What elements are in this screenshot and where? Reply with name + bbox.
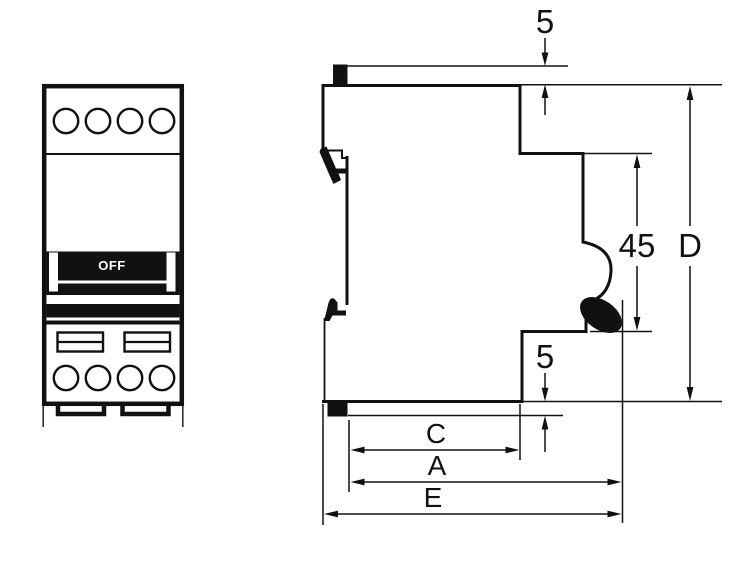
side-view bbox=[320, 65, 629, 417]
toggle-divider-line bbox=[58, 281, 167, 284]
arrow-left-icon bbox=[324, 511, 338, 518]
dimension-depth-a: A bbox=[351, 450, 622, 485]
arrow-down-icon bbox=[542, 388, 549, 401]
mounting-tab bbox=[123, 405, 169, 414]
dimension-label-e: E bbox=[424, 482, 443, 513]
toggle-label: OFF bbox=[98, 258, 126, 273]
front-view: OFF bbox=[43, 86, 183, 427]
toggle-side-slot bbox=[49, 253, 58, 292]
din-fixed-claw bbox=[320, 147, 348, 185]
dimension-drawing: OFF bbox=[0, 0, 745, 573]
dimension-overall-height: D bbox=[678, 86, 702, 401]
mounting-tab bbox=[58, 405, 104, 414]
din-clip-foot bbox=[328, 402, 348, 417]
toggle-switch: OFF bbox=[47, 252, 180, 296]
din-clip-hook bbox=[324, 298, 346, 321]
arrow-down-icon bbox=[634, 317, 641, 331]
dimension-top-protrusion: 5 bbox=[536, 3, 554, 115]
arrow-right-icon bbox=[608, 511, 622, 518]
front-step-stripe bbox=[47, 321, 180, 325]
toggle-side-slot bbox=[167, 253, 176, 292]
arrow-left-icon bbox=[351, 479, 365, 486]
side-profile-outline bbox=[322, 86, 611, 402]
arrow-up-icon bbox=[687, 86, 694, 100]
arrow-up-icon bbox=[542, 416, 549, 430]
dimension-label-c: C bbox=[426, 418, 446, 449]
dimension-label-a: A bbox=[428, 450, 447, 481]
arrow-right-icon bbox=[608, 479, 622, 486]
dimension-label-top-5: 5 bbox=[536, 3, 554, 40]
arrow-up-icon bbox=[634, 155, 641, 169]
dimension-depth-c: C bbox=[351, 418, 520, 453]
dimension-bottom-protrusion: 5 bbox=[536, 338, 554, 452]
dimension-label-45: 45 bbox=[619, 227, 656, 264]
arrow-right-icon bbox=[506, 447, 520, 454]
arrow-left-icon bbox=[351, 447, 365, 454]
top-clip-button bbox=[333, 65, 348, 86]
dimensions: 5 45 D 5 bbox=[323, 3, 722, 525]
arrow-down-icon bbox=[687, 387, 694, 401]
breaker-dimension-diagram: OFF bbox=[0, 0, 745, 573]
arrow-up-icon bbox=[542, 85, 549, 99]
dimension-label-bottom-5: 5 bbox=[536, 338, 554, 375]
dimension-label-d: D bbox=[678, 227, 702, 264]
dimension-front-height: 45 bbox=[619, 155, 656, 331]
dimension-depth-e: E bbox=[324, 482, 622, 517]
front-step-band bbox=[47, 304, 180, 318]
arrow-down-icon bbox=[542, 53, 549, 67]
